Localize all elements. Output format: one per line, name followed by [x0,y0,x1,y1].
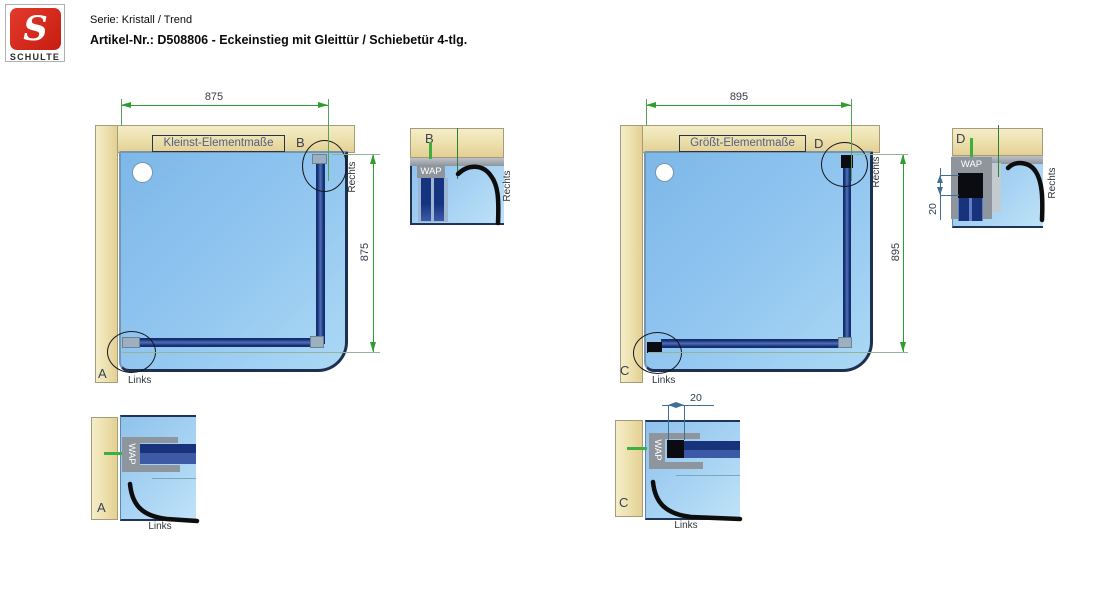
right-diagram-rail-corner-connector [838,337,852,348]
detail-a-door-rail-light [140,453,196,464]
right-dim-height-arrow-top [900,154,906,164]
left-dim-height-line [373,154,374,352]
detail-d-glass-line [970,138,973,157]
detail-c-label: C [619,495,628,510]
right-dim-width-arrow-right [841,102,851,108]
right-diagram-door-rail-right [843,167,851,344]
right-dim-width-ext-right [851,99,852,181]
right-dim-width-line [646,105,851,106]
detail-a-tray-corner-arc [123,480,201,526]
right-diagram-title: Größt-Elementmaße [679,135,806,152]
detail-d-wap-label: WAP [951,159,992,171]
detail-a-wap-label: WAP [125,437,137,471]
left-dim-width-line [121,105,328,106]
detail-c-door-rail-dark [684,441,740,450]
left-dim-width-ext-right [328,99,329,181]
detail-a-glass-line [104,452,122,455]
detail-a-edge-line [152,478,196,479]
detail-d-door-stop-profile [958,173,983,198]
detail-d-door-profile-2 [972,198,982,221]
detail-d-rechts-label: Rechts [1047,163,1059,203]
right-diagram-detail-circle-c [633,332,682,374]
detail-d-extension-line [998,125,999,177]
left-diagram-detail-circle-b [302,140,347,192]
right-dim-height-value: 895 [890,230,902,274]
detail-b-rechts-label: Rechts [502,166,514,206]
detail-b-door-profile-1 [421,178,431,221]
left-dim-width-arrow-right [318,102,328,108]
schulte-logo: S SCHULTE [5,4,65,62]
right-dim-width-value: 895 [717,91,761,103]
detail-c-gap-dim-value: 20 [682,392,710,404]
detail-c-gap-dim-ext-left [668,406,669,440]
detail-c-glass-line [627,447,647,450]
left-diagram-corner-a-label: A [98,366,107,381]
detail-d-gap-dim-tick-bottom [940,195,959,196]
right-dim-height-ext-bottom [648,352,908,353]
left-diagram-drain [132,162,153,183]
detail-c-wap-label: WAP [651,433,663,467]
left-diagram-corner-b-label: B [296,135,305,150]
right-dim-width-ext-left [646,99,647,126]
detail-d-label: D [956,131,965,146]
detail-d-gap-dim-value: 20 [927,187,939,231]
left-dim-height-ext-bottom [122,352,380,353]
left-diagram-title: Kleinst-Elementmaße [152,135,285,152]
left-diagram-rail-corner-connector [310,336,324,348]
left-dim-height-arrow-top [370,154,376,164]
right-diagram-links-label: Links [652,375,675,386]
detail-c-door-stop-profile [667,440,684,458]
detail-c-gap-dim-arrow-left [668,402,676,408]
right-diagram-door-rail-bottom [661,339,843,348]
technical-drawing-page: S SCHULTE Serie: Kristall / Trend Artike… [0,0,1116,592]
right-diagram-rechts-label: Rechts [871,152,883,192]
detail-d-gap-dim-arrow-top [937,175,943,183]
right-dim-height-arrow-bottom [900,342,906,352]
detail-c-tray-corner-arc [648,478,743,523]
logo-brand-text: SCHULTE [6,52,64,62]
detail-b-tray-corner-arc [453,160,503,226]
detail-c-links-label: Links [666,520,706,531]
left-diagram-links-label: Links [128,375,151,386]
right-dim-height-line [903,154,904,352]
article-line: Artikel-Nr.: D508806 - Eckeinstieg mit G… [90,33,467,47]
right-dim-width-arrow-left [646,102,656,108]
detail-c-gap-dim-ext-right [684,406,685,440]
detail-b-door-profile-2 [434,178,444,221]
left-dim-height-arrow-bottom [370,342,376,352]
left-diagram-rechts-label: Rechts [347,157,359,197]
left-dim-width-arrow-left [121,102,131,108]
detail-c-edge-line [676,475,740,476]
detail-d-door-profile-1 [959,198,969,221]
detail-d-tray-corner-arc [1003,158,1045,224]
detail-a-door-rail-dark [140,444,196,453]
left-dim-height-value: 875 [359,230,371,274]
detail-d-profile-channel-side [992,163,1001,212]
left-dim-height-ext-top [332,154,380,155]
right-diagram-corner-c-label: C [620,363,629,378]
series-line: Serie: Kristall / Trend [90,14,192,26]
right-dim-height-ext-top [855,154,908,155]
logo-s-icon: S [10,8,61,50]
left-dim-width-ext-left [121,99,122,126]
detail-a-label: A [97,500,106,515]
left-dim-width-value: 875 [192,91,236,103]
right-diagram-drain [655,163,674,182]
detail-a-links-label: Links [140,521,180,532]
right-diagram-corner-d-label: D [814,136,823,151]
detail-c-door-rail-light [684,450,740,458]
detail-b-wap-label: WAP [417,165,445,178]
detail-b-glass-line [429,142,432,159]
right-diagram-detail-circle-d [821,142,868,187]
